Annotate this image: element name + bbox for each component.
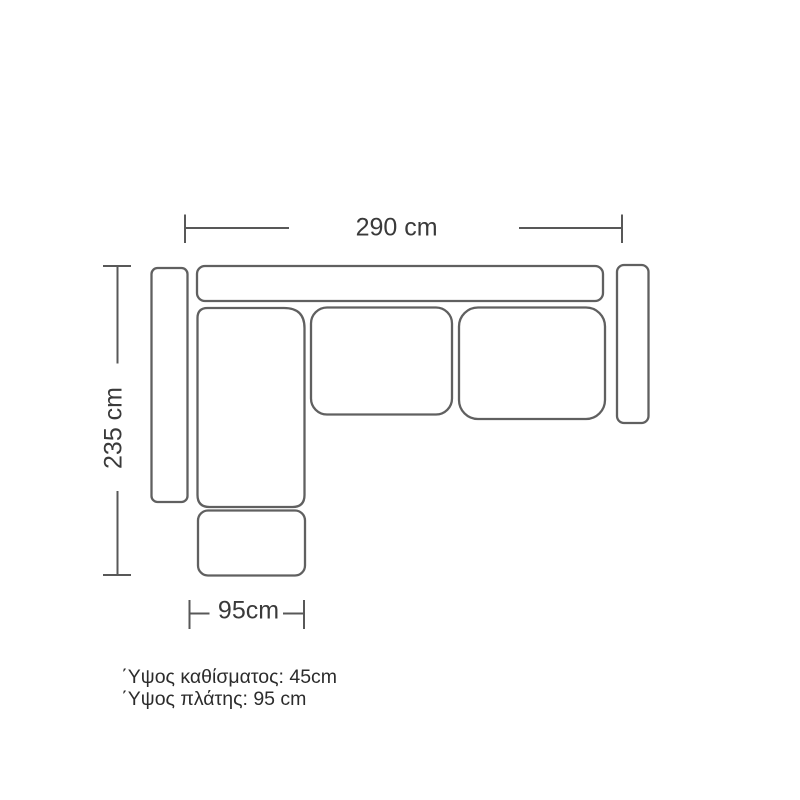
svg-text:95cm: 95cm: [218, 597, 279, 625]
svg-text:235 cm: 235 cm: [100, 387, 128, 469]
svg-text:΄Υψος πλάτης: 95 cm: ΄Υψος πλάτης: 95 cm: [121, 688, 306, 710]
svg-text:290 cm: 290 cm: [356, 213, 438, 241]
svg-text:΄Υψος καθίσματος: 45cm: ΄Υψος καθίσματος: 45cm: [121, 666, 337, 688]
